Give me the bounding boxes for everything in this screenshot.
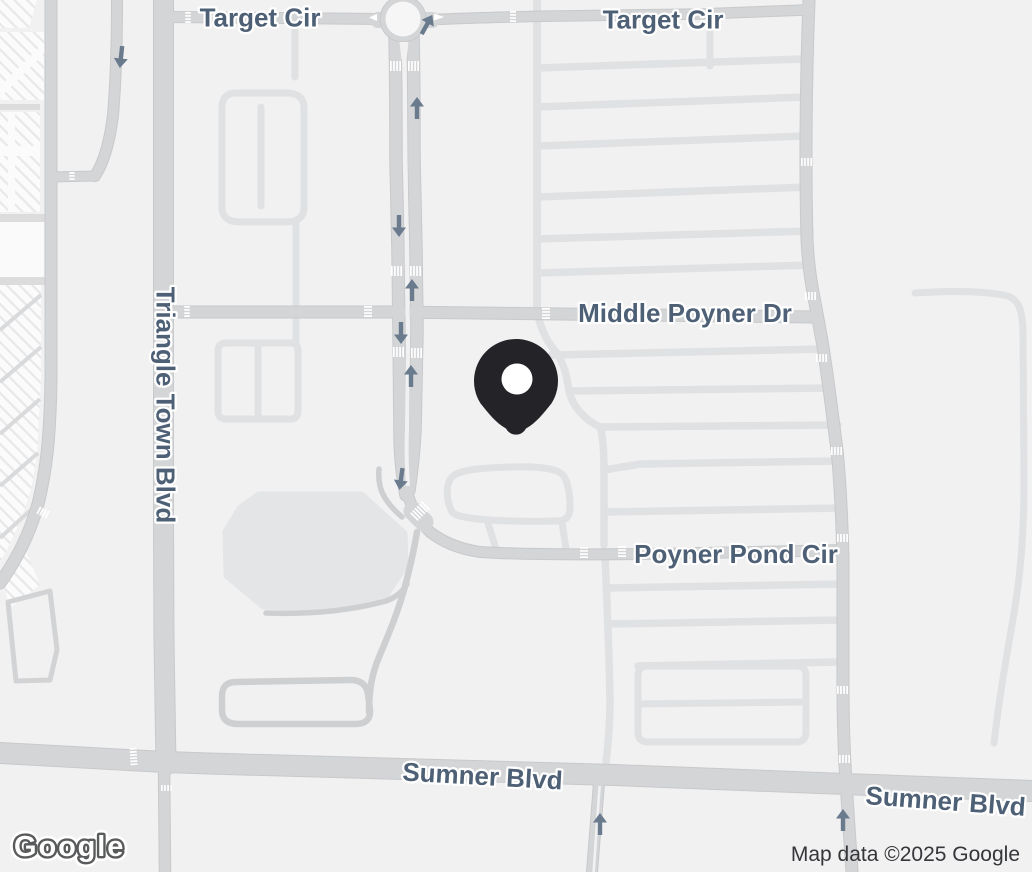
- svg-text:Poyner Pond Cir: Poyner Pond Cir: [634, 539, 838, 569]
- svg-text:Target Cir: Target Cir: [200, 3, 321, 33]
- svg-text:Triangle Town Blvd: Triangle Town Blvd: [151, 287, 181, 523]
- svg-text:Middle Poyner Dr: Middle Poyner Dr: [578, 298, 792, 328]
- svg-text:Map data ©2025 Google: Map data ©2025 Google: [791, 843, 1020, 866]
- svg-text:Target Cir: Target Cir: [603, 5, 724, 35]
- svg-text:Google: Google: [14, 831, 125, 863]
